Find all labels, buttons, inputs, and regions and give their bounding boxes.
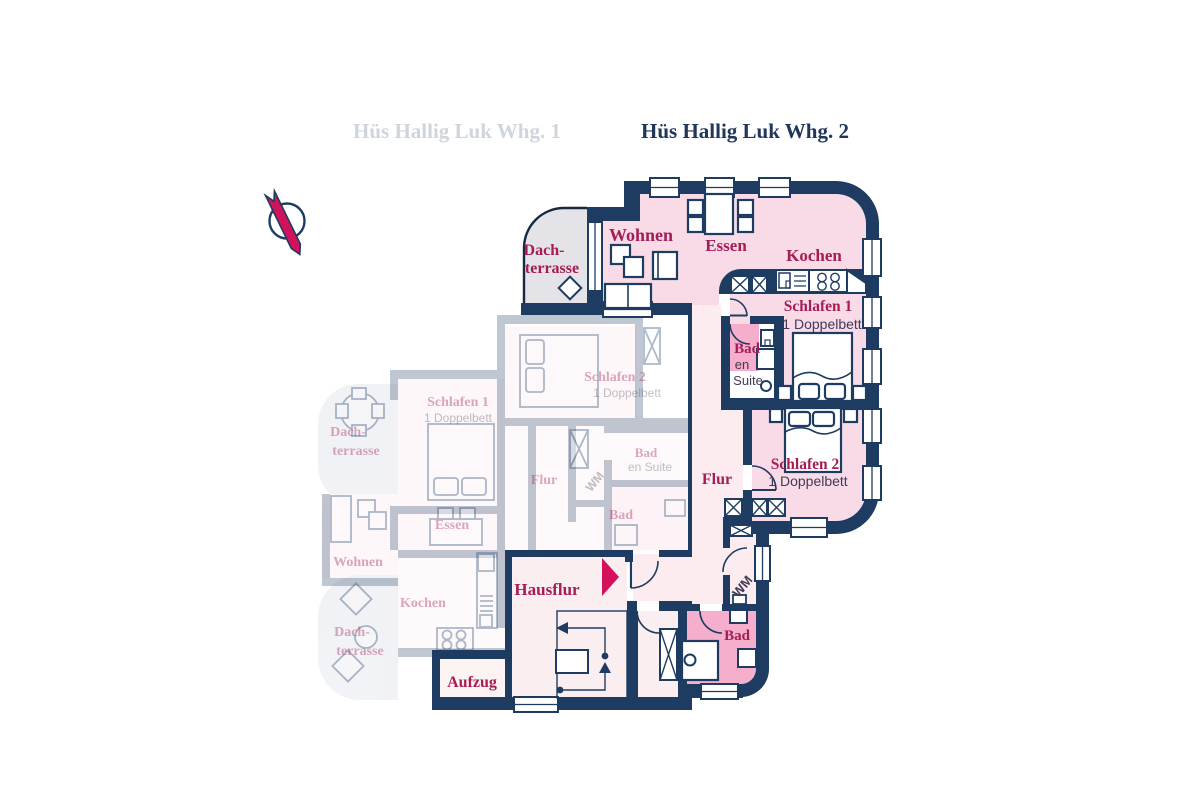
svg-text:1 Doppelbett: 1 Doppelbett bbox=[782, 316, 862, 332]
svg-text:Flur: Flur bbox=[702, 471, 732, 488]
svg-text:Wohnen: Wohnen bbox=[333, 555, 383, 570]
svg-text:Hausflur: Hausflur bbox=[514, 580, 580, 599]
svg-text:en: en bbox=[735, 357, 749, 372]
svg-text:Essen: Essen bbox=[435, 518, 469, 533]
svg-text:Bad: Bad bbox=[724, 628, 751, 644]
svg-text:Bad: Bad bbox=[609, 508, 633, 523]
svg-text:1 Doppelbett: 1 Doppelbett bbox=[768, 473, 848, 489]
svg-text:Dach-: Dach- bbox=[524, 242, 565, 259]
svg-text:1 Doppelbett: 1 Doppelbett bbox=[593, 386, 662, 400]
svg-text:terrasse: terrasse bbox=[332, 444, 379, 459]
svg-text:Wohnen: Wohnen bbox=[609, 225, 673, 245]
svg-text:Aufzug: Aufzug bbox=[447, 674, 497, 691]
svg-text:Suite: Suite bbox=[733, 373, 763, 388]
svg-text:Essen: Essen bbox=[705, 236, 747, 255]
svg-text:en Suite: en Suite bbox=[628, 460, 672, 474]
svg-text:Schlafen 2: Schlafen 2 bbox=[771, 456, 840, 473]
svg-text:Schlafen 1: Schlafen 1 bbox=[784, 298, 852, 315]
svg-text:Bad: Bad bbox=[734, 341, 761, 357]
svg-text:terrasse: terrasse bbox=[336, 644, 383, 659]
svg-text:Flur: Flur bbox=[531, 473, 557, 488]
svg-text:Kochen: Kochen bbox=[400, 596, 446, 611]
svg-text:Schlafen 1: Schlafen 1 bbox=[427, 395, 489, 410]
svg-text:Bad: Bad bbox=[635, 445, 658, 460]
svg-text:Dach-: Dach- bbox=[334, 625, 370, 640]
svg-text:Hüs Hallig Luk Whg. 1: Hüs Hallig Luk Whg. 1 bbox=[353, 119, 561, 143]
svg-text:Schlafen 2: Schlafen 2 bbox=[584, 370, 646, 385]
svg-text:terrasse: terrasse bbox=[525, 260, 579, 277]
svg-text:1 Doppelbett: 1 Doppelbett bbox=[424, 411, 493, 425]
svg-text:Dach-: Dach- bbox=[330, 425, 366, 440]
svg-text:Kochen: Kochen bbox=[786, 246, 842, 265]
svg-text:Hüs Hallig Luk Whg. 2: Hüs Hallig Luk Whg. 2 bbox=[641, 119, 849, 143]
